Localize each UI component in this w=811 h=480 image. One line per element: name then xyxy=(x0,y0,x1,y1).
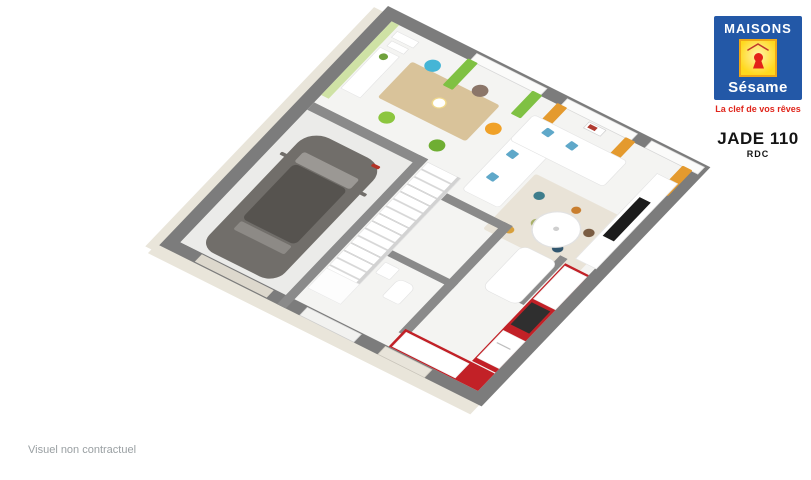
logo-text-sesame: Sésame xyxy=(728,80,788,95)
logo-text-maisons: MAISONS xyxy=(724,22,792,35)
branding-column: MAISONS Sésame La clef de vos rêves JADE… xyxy=(702,16,811,159)
disclaimer-text: Visuel non contractuel xyxy=(28,444,136,456)
plan-subtitle: RDC xyxy=(702,149,811,159)
logo-tagline: La clef de vos rêves xyxy=(702,104,811,114)
plan-title: JADE 110 xyxy=(702,130,811,147)
floorplan-3d-view xyxy=(159,6,710,406)
maisons-sesame-logo: MAISONS Sésame xyxy=(714,16,802,100)
keyhole-icon xyxy=(739,39,777,77)
roof-icon xyxy=(747,43,769,51)
